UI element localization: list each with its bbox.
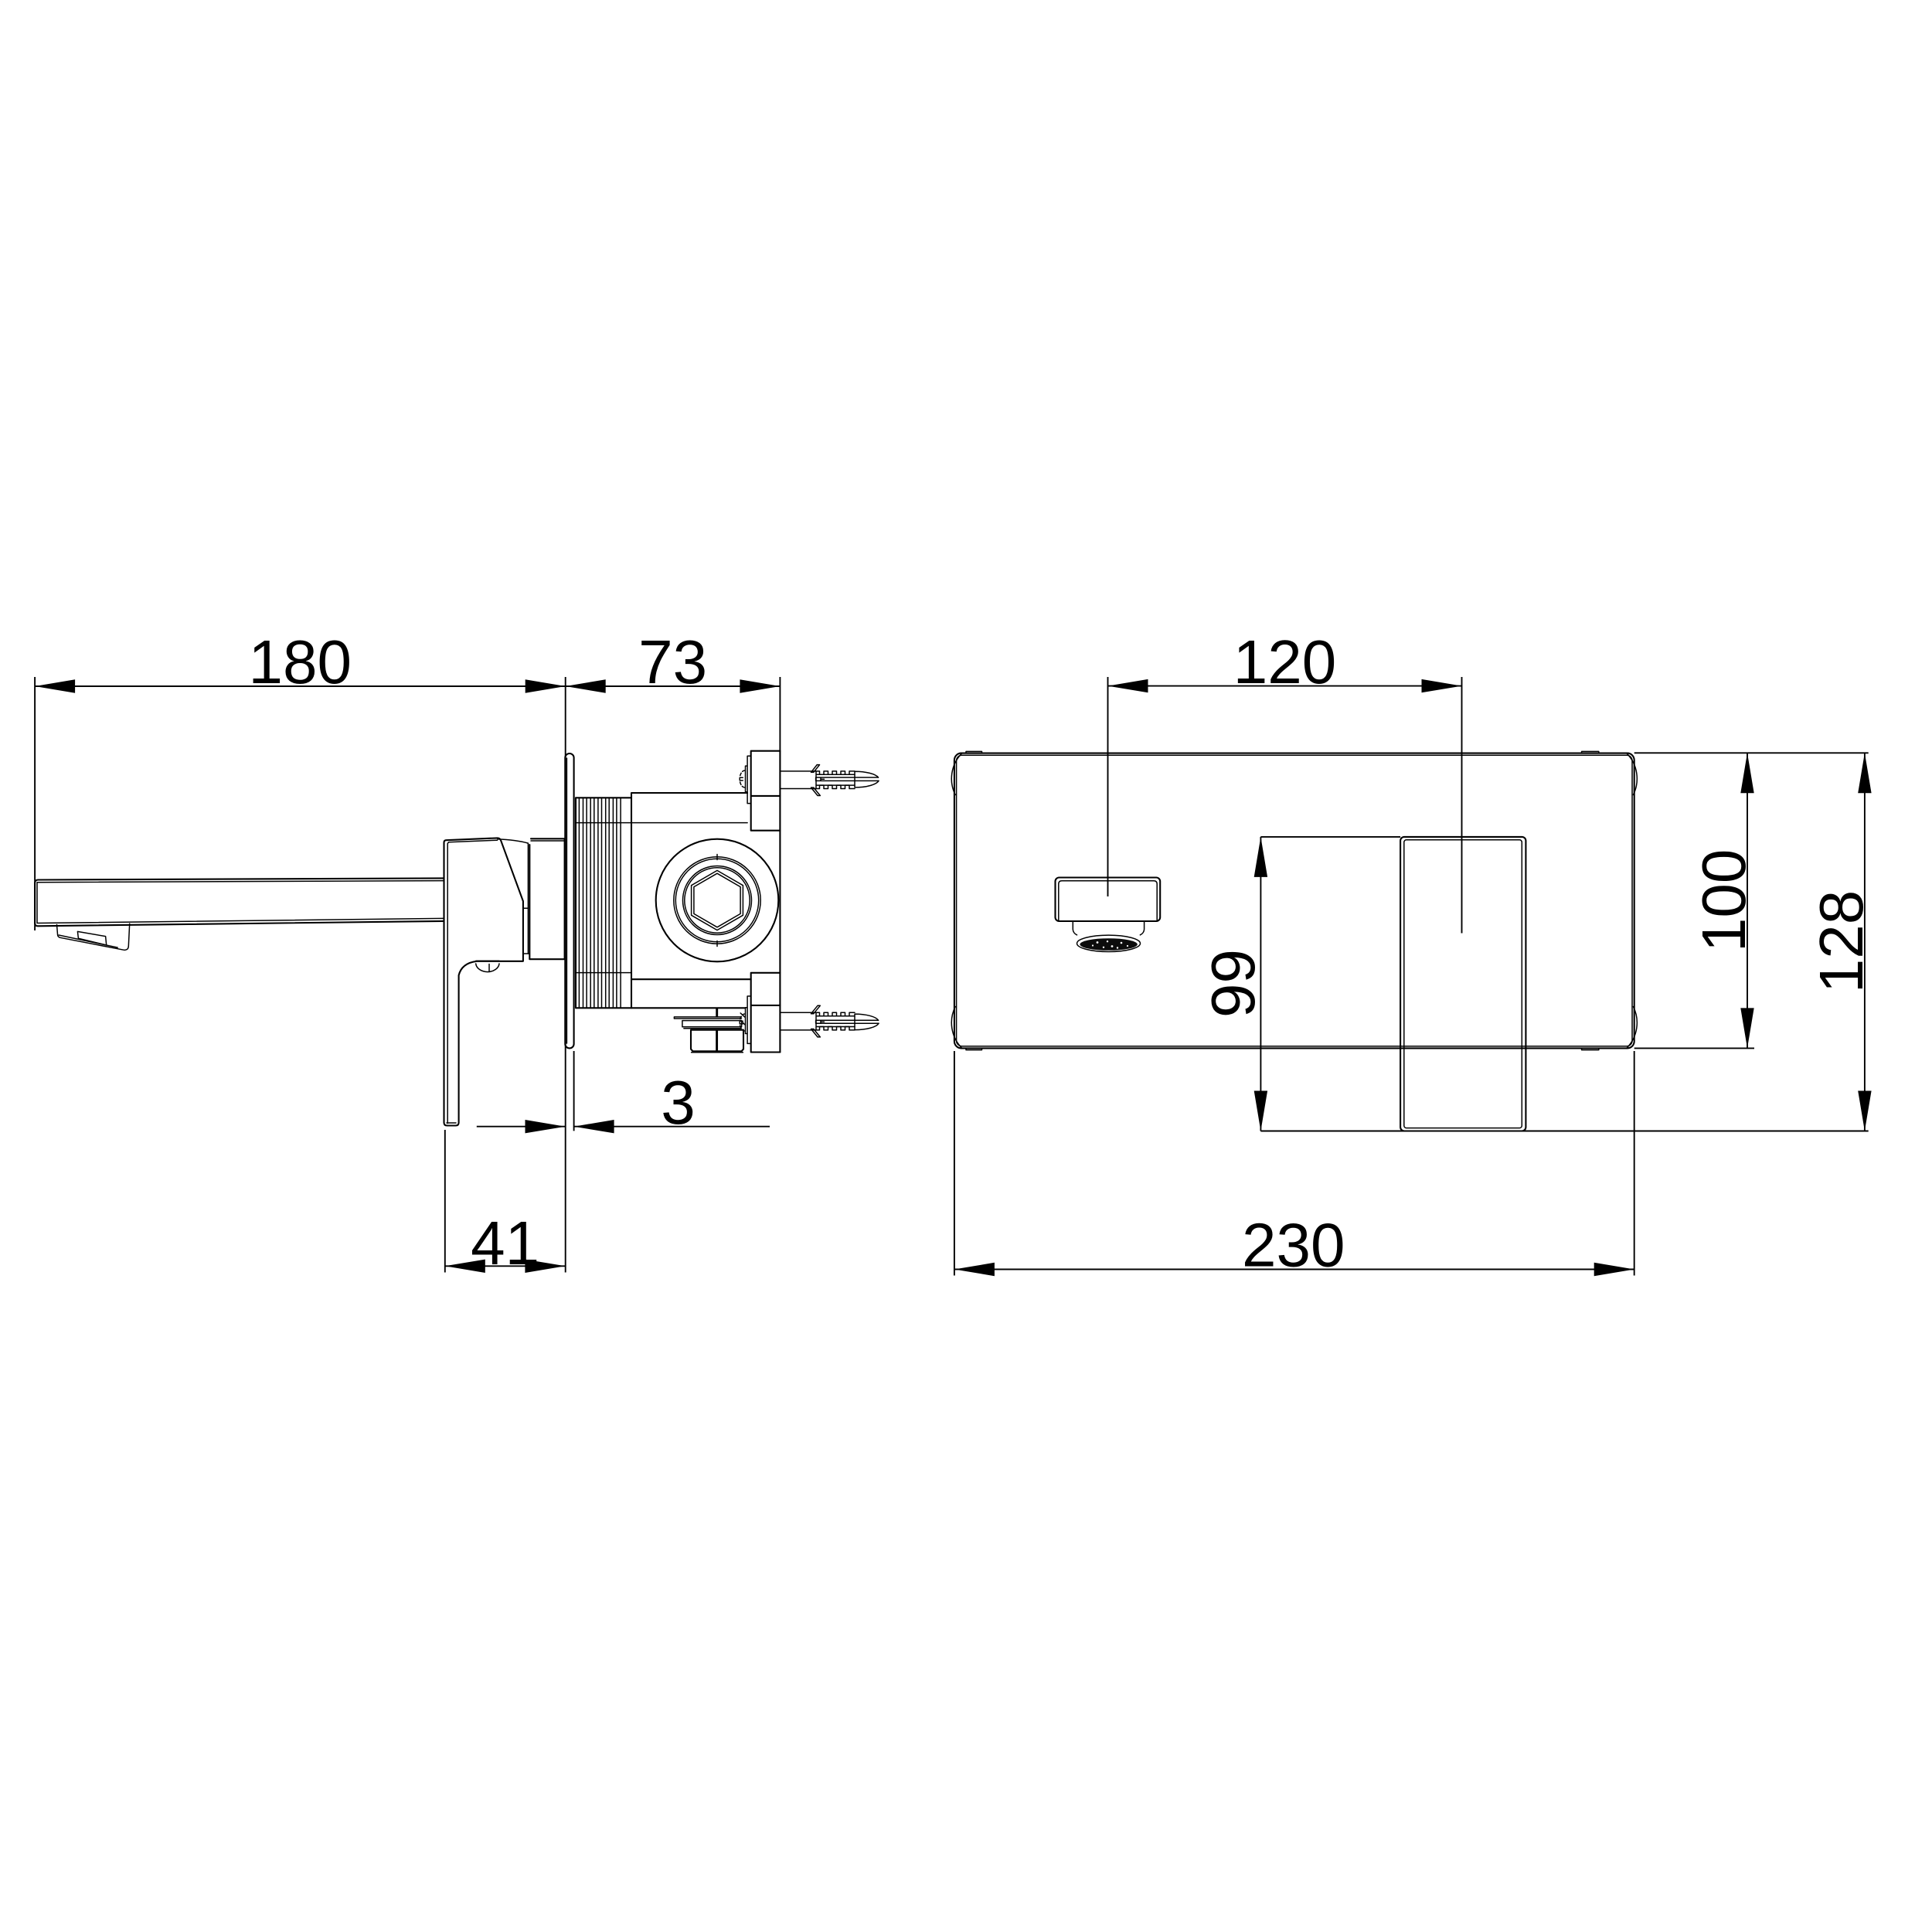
svg-text:73: 73 — [638, 628, 707, 696]
svg-text:99: 99 — [1199, 949, 1267, 1018]
svg-text:128: 128 — [1807, 890, 1876, 993]
svg-text:230: 230 — [1242, 1211, 1345, 1280]
svg-text:100: 100 — [1689, 849, 1758, 952]
svg-text:3: 3 — [661, 1068, 696, 1137]
svg-text:120: 120 — [1233, 628, 1336, 696]
svg-text:180: 180 — [249, 628, 352, 696]
svg-text:41: 41 — [471, 1209, 539, 1277]
